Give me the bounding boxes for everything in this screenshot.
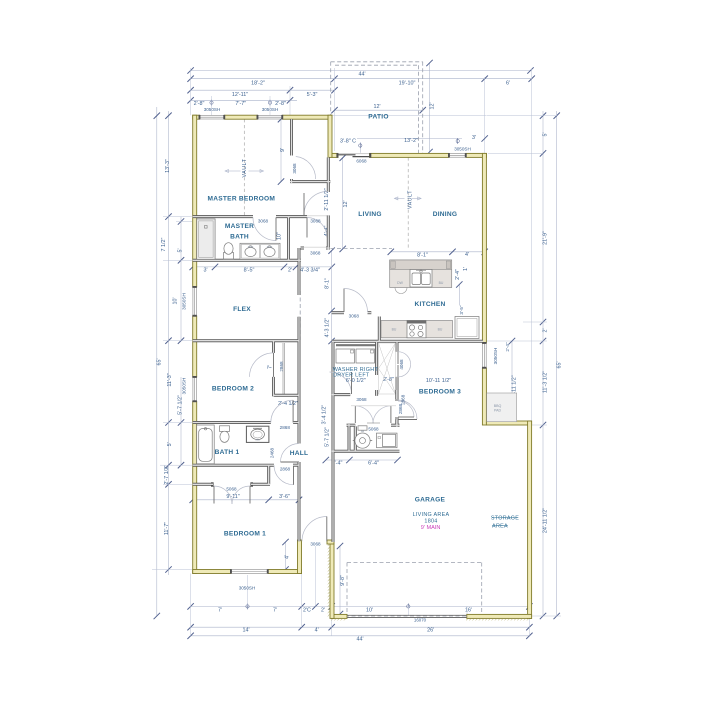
svg-text:BU: BU <box>439 281 444 285</box>
svg-text:13'-2": 13'-2" <box>404 138 418 144</box>
svg-text:12': 12' <box>343 200 349 207</box>
svg-text:AREA: AREA <box>492 524 508 530</box>
svg-text:12'-11": 12'-11" <box>232 92 248 98</box>
svg-text:4'-3 3/4": 4'-3 3/4" <box>300 267 320 273</box>
svg-text:5'-7 1/2": 5'-7 1/2" <box>178 395 184 415</box>
svg-text:LIVING: LIVING <box>358 211 381 218</box>
svg-text:3068: 3068 <box>310 542 321 547</box>
svg-text:DINING: DINING <box>433 211 458 218</box>
svg-text:44': 44' <box>356 636 363 642</box>
svg-text:21'-9": 21'-9" <box>543 231 549 245</box>
svg-text:10": 10" <box>277 232 283 240</box>
svg-text:9': 9' <box>280 148 286 152</box>
svg-text:16': 16' <box>465 607 472 613</box>
svg-text:7': 7' <box>273 607 277 613</box>
svg-text:aaaa: aaaa <box>267 245 273 248</box>
svg-text:aaa: aaa <box>255 438 260 441</box>
svg-text:5'-7 1/2": 5'-7 1/2" <box>325 427 331 447</box>
svg-text:8'-1": 8'-1" <box>417 252 428 258</box>
svg-text:BATH: BATH <box>230 234 249 241</box>
svg-text:4': 4' <box>315 628 319 634</box>
svg-text:2'-8": 2'-8" <box>275 101 286 107</box>
svg-text:6068: 6068 <box>356 158 367 163</box>
svg-text:3050SH: 3050SH <box>493 348 498 365</box>
svg-text:3068: 3068 <box>356 397 367 402</box>
svg-text:2'-4": 2'-4" <box>455 269 461 280</box>
svg-text:LIVING AREA: LIVING AREA <box>413 512 450 518</box>
svg-text:14': 14' <box>242 628 249 634</box>
svg-text:26': 26' <box>427 628 434 634</box>
svg-text:5': 5' <box>543 132 549 136</box>
svg-text:BEDROOM 1: BEDROOM 1 <box>224 531 266 538</box>
svg-text:18'-2": 18'-2" <box>251 80 265 86</box>
svg-text:3'-8" C: 3'-8" C <box>340 139 356 145</box>
svg-text:VAULT: VAULT <box>407 190 413 209</box>
svg-text:3'-5": 3'-5" <box>459 305 464 315</box>
svg-text:4068: 4068 <box>399 359 404 370</box>
svg-text:3068: 3068 <box>310 251 321 256</box>
svg-text:2'C: 2'C <box>303 607 311 613</box>
svg-text:BEDROOM 2: BEDROOM 2 <box>212 386 254 393</box>
svg-text:PATIO: PATIO <box>368 114 388 121</box>
svg-text:3050SH: 3050SH <box>182 293 187 310</box>
svg-text:BU: BU <box>392 328 397 332</box>
svg-text:44': 44' <box>358 71 365 77</box>
svg-text:4'-3 1/2": 4'-3 1/2" <box>324 318 330 338</box>
svg-text:11'-7": 11'-7" <box>164 522 170 535</box>
svg-text:MASTER: MASTER <box>225 223 254 230</box>
svg-text:4': 4' <box>465 252 469 258</box>
svg-text:3'-4 1/2": 3'-4 1/2" <box>322 405 328 425</box>
svg-text:1804: 1804 <box>424 518 437 524</box>
svg-text:9' MAIN: 9' MAIN <box>421 525 441 531</box>
svg-text:BBQ: BBQ <box>494 404 502 408</box>
svg-text:19'-10": 19'-10" <box>399 80 416 86</box>
svg-text:8'-5": 8'-5" <box>244 267 255 273</box>
svg-text:3050SH: 3050SH <box>182 378 187 395</box>
svg-text:6'-4": 6'-4" <box>368 461 379 467</box>
svg-text:HALL: HALL <box>290 450 309 457</box>
svg-text:6': 6' <box>506 80 510 86</box>
svg-text:STORAGE: STORAGE <box>491 516 519 522</box>
svg-text:VAULT: VAULT <box>242 158 248 177</box>
svg-text:MASTER BEDROOM: MASTER BEDROOM <box>207 195 275 202</box>
svg-text:2': 2' <box>288 267 292 273</box>
svg-text:5068: 5068 <box>226 487 237 492</box>
svg-text:6'-0 1/2": 6'-0 1/2" <box>346 378 366 384</box>
svg-text:16070: 16070 <box>414 618 427 623</box>
svg-text:9'-8": 9'-8" <box>340 575 346 586</box>
svg-text:GARAGE: GARAGE <box>415 497 446 504</box>
svg-text:2868: 2868 <box>280 425 291 430</box>
svg-text:4': 4' <box>285 555 291 559</box>
svg-text:12': 12' <box>373 104 380 110</box>
svg-text:2': 2' <box>321 607 325 613</box>
svg-text:7'-7": 7'-7" <box>235 101 246 107</box>
svg-text:3': 3' <box>472 135 476 141</box>
svg-text:2'-7 1/2": 2'-7 1/2" <box>164 465 170 485</box>
svg-text:3'-6": 3'-6" <box>279 494 290 500</box>
svg-text:PAD: PAD <box>494 409 502 413</box>
svg-text:3068: 3068 <box>258 218 269 223</box>
svg-text:3050SH: 3050SH <box>239 586 256 591</box>
svg-text:65': 65' <box>557 361 563 368</box>
svg-text:3068: 3068 <box>349 314 360 319</box>
svg-text:5'-3": 5'-3" <box>307 92 318 98</box>
svg-text:10': 10' <box>173 297 179 304</box>
svg-text:2'-8": 2'-8" <box>194 101 205 107</box>
svg-text:2868: 2868 <box>401 394 406 405</box>
svg-text:2868: 2868 <box>280 466 291 471</box>
svg-text:5': 5' <box>178 248 184 252</box>
svg-text:BU: BU <box>438 328 443 332</box>
svg-text:8'-1": 8'-1" <box>324 278 330 289</box>
svg-text:aaaa: aaaa <box>248 245 254 248</box>
svg-text:7': 7' <box>268 365 274 369</box>
svg-text:2': 2' <box>543 328 549 332</box>
svg-text:10'-11 1/2": 10'-11 1/2" <box>426 378 451 384</box>
svg-text:2468: 2468 <box>270 447 275 458</box>
svg-text:FLEX: FLEX <box>233 306 251 313</box>
svg-text:13'-3": 13'-3" <box>165 159 171 173</box>
svg-text:BEDROOM 3: BEDROOM 3 <box>419 389 461 396</box>
svg-text:24'-11 1/2": 24'-11 1/2" <box>543 508 549 533</box>
svg-text:3050SH: 3050SH <box>454 146 471 151</box>
svg-text:12': 12' <box>430 102 436 109</box>
svg-text:3068: 3068 <box>310 218 321 223</box>
svg-text:10': 10' <box>366 607 373 613</box>
svg-text:11'-3 1/2": 11'-3 1/2" <box>543 371 549 393</box>
svg-text:3': 3' <box>203 267 207 273</box>
svg-text:KITCHEN: KITCHEN <box>414 301 445 308</box>
svg-text:11'-3": 11'-3" <box>167 373 173 386</box>
svg-text:BATH 1: BATH 1 <box>215 449 240 456</box>
svg-text:3050SH: 3050SH <box>204 107 221 112</box>
svg-text:5': 5' <box>167 442 173 446</box>
svg-text:DW: DW <box>397 281 403 285</box>
svg-text:7': 7' <box>218 607 222 613</box>
svg-text:3068: 3068 <box>292 163 297 174</box>
svg-text:7 1/2": 7 1/2" <box>161 237 167 251</box>
svg-text:5068: 5068 <box>368 427 379 432</box>
svg-text:1': 1' <box>463 267 469 271</box>
svg-text:65': 65' <box>157 358 163 365</box>
